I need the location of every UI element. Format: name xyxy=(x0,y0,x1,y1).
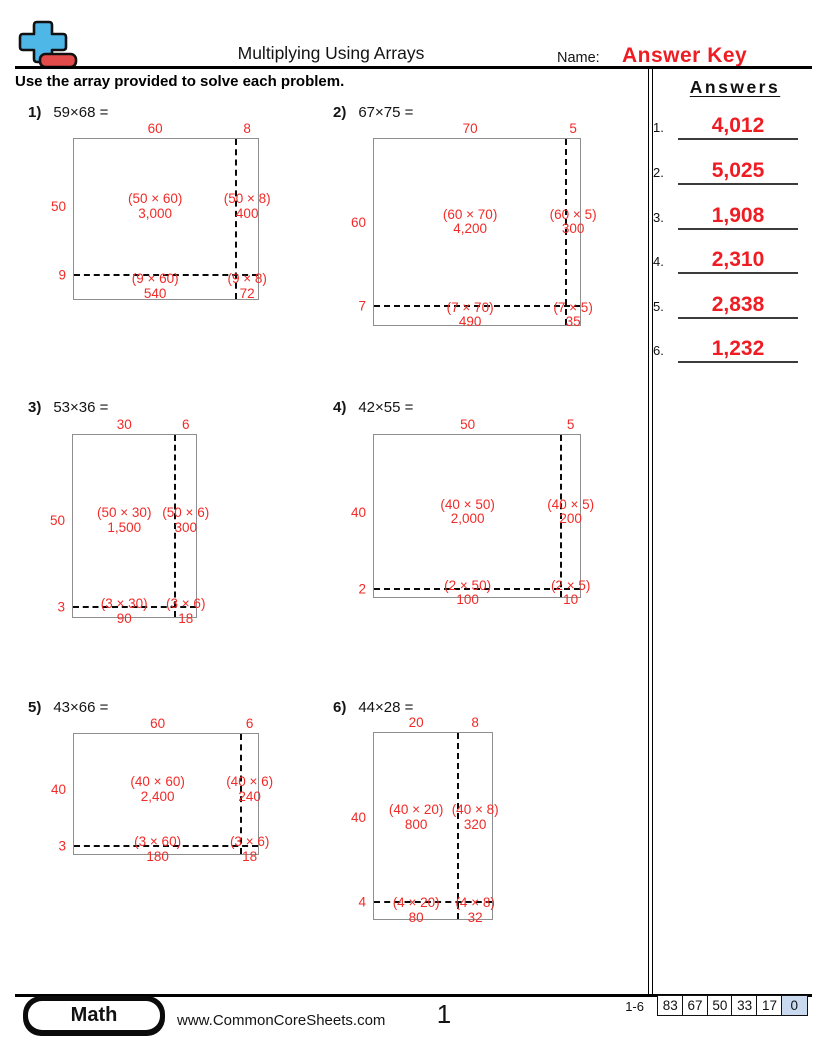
cell-product: 800 xyxy=(405,818,428,833)
cell-formula: (40 × 60) xyxy=(130,775,184,790)
array-cell: (7 × 70) 490 xyxy=(374,306,566,325)
cell-formula: (7 × 70) xyxy=(447,301,494,316)
array-cell: (60 × 70) 4,200 xyxy=(374,139,566,306)
top-label-tens: 60 xyxy=(74,121,236,136)
cell-formula: (40 × 50) xyxy=(440,498,494,513)
cell-product: 240 xyxy=(238,790,261,805)
page-title: Multiplying Using Arrays xyxy=(98,43,564,64)
array-cell: (50 × 30) 1,500 xyxy=(73,435,175,607)
array-cell: (50 × 8) 400 xyxy=(236,139,258,275)
array-cell: (9 × 8) 72 xyxy=(236,275,258,299)
problem-header: 3) 53×36 = xyxy=(28,399,108,416)
problem-number: 2) xyxy=(333,104,346,121)
score-box: 67 xyxy=(682,995,709,1016)
problem-expression: 59×68 = xyxy=(53,104,108,121)
top-label-tens: 30 xyxy=(73,417,175,432)
array-cell: (2 × 5) 10 xyxy=(561,589,580,597)
cell-product: 90 xyxy=(117,612,132,627)
cell-product: 18 xyxy=(242,850,257,865)
array-cell: (60 × 5) 300 xyxy=(566,139,580,306)
array-cell: (9 × 60) 540 xyxy=(74,275,236,299)
top-label-tens: 50 xyxy=(374,417,561,432)
top-label-ones: 6 xyxy=(175,417,196,432)
top-label-tens: 70 xyxy=(374,121,566,136)
cell-product: 1,500 xyxy=(107,521,141,536)
cell-formula: (40 × 20) xyxy=(389,803,443,818)
cell-formula: (50 × 30) xyxy=(97,506,151,521)
cell-product: 180 xyxy=(146,850,169,865)
answer-number: 4. xyxy=(653,254,664,269)
cell-formula: (60 × 5) xyxy=(550,208,597,223)
cell-formula: (40 × 8) xyxy=(452,803,499,818)
problem-number: 6) xyxy=(333,699,346,716)
answer-value: 5,025 xyxy=(678,158,798,185)
side-label-tens: 50 xyxy=(50,435,65,607)
cell-formula: (40 × 5) xyxy=(547,498,594,513)
score-box: 33 xyxy=(731,995,758,1016)
problem-expression: 42×55 = xyxy=(358,399,413,416)
problem-expression: 53×36 = xyxy=(53,399,108,416)
subject-badge: Math xyxy=(23,996,165,1036)
array-cell: (4 × 20) 80 xyxy=(374,902,458,919)
array-diagram: 60 8 50 9 (50 × 60) 3,000 (50 × 8) 400 (… xyxy=(73,138,259,300)
problem-number: 4) xyxy=(333,399,346,416)
answer-row: 1. 4,012 xyxy=(652,113,798,138)
website-url: www.CommonCoreSheets.com xyxy=(177,1012,385,1029)
cell-formula: (4 × 20) xyxy=(393,896,440,911)
cell-product: 490 xyxy=(459,315,482,330)
array-cell: (2 × 50) 100 xyxy=(374,589,561,597)
cell-product: 320 xyxy=(464,818,487,833)
problem-header: 2) 67×75 = xyxy=(333,104,413,121)
array-cell: (40 × 60) 2,400 xyxy=(74,734,241,846)
array-cell: (40 × 6) 240 xyxy=(241,734,258,846)
array-cell: (40 × 50) 2,000 xyxy=(374,435,561,589)
answer-value: 2,310 xyxy=(678,247,798,274)
cell-formula: (4 × 8) xyxy=(455,896,494,911)
array-cell: (4 × 8) 32 xyxy=(458,902,492,919)
name-value-answer-key: Answer Key xyxy=(622,44,747,68)
commoncoresheets-logo-icon xyxy=(18,20,80,70)
array-diagram: 30 6 50 3 (50 × 30) 1,500 (50 × 6) 300 (… xyxy=(72,434,197,618)
top-label-ones: 5 xyxy=(561,417,580,432)
array-diagram: 70 5 60 7 (60 × 70) 4,200 (60 × 5) 300 (… xyxy=(373,138,581,326)
cell-product: 2,400 xyxy=(141,790,175,805)
cell-formula: (3 × 6) xyxy=(230,835,269,850)
cell-formula: (60 × 70) xyxy=(443,208,497,223)
answer-row: 4. 2,310 xyxy=(652,247,798,272)
top-label-ones: 5 xyxy=(566,121,580,136)
problem-number: 5) xyxy=(28,699,41,716)
array-cell: (3 × 30) 90 xyxy=(73,607,175,617)
side-label-ones: 7 xyxy=(358,298,366,313)
answer-value: 1,232 xyxy=(678,336,798,363)
side-label-ones: 3 xyxy=(58,838,66,853)
cell-product: 4,200 xyxy=(453,222,487,237)
cell-product: 3,000 xyxy=(138,207,172,222)
answer-number: 3. xyxy=(653,210,664,225)
score-box-zero: 0 xyxy=(781,995,808,1016)
problem-header: 4) 42×55 = xyxy=(333,399,413,416)
problem-number: 1) xyxy=(28,104,41,121)
top-label-tens: 20 xyxy=(374,715,458,730)
name-label: Name: xyxy=(557,50,600,66)
answer-number: 2. xyxy=(653,165,664,180)
cell-product: 10 xyxy=(563,593,578,608)
cell-formula: (40 × 6) xyxy=(226,775,273,790)
subject-badge-label: Math xyxy=(28,1001,160,1030)
problem-number: 3) xyxy=(28,399,41,416)
problem-expression: 44×28 = xyxy=(358,699,413,716)
cell-product: 100 xyxy=(456,593,479,608)
answer-row: 3. 1,908 xyxy=(652,203,798,228)
problem-header: 1) 59×68 = xyxy=(28,104,108,121)
cell-formula: (2 × 50) xyxy=(444,579,491,594)
cell-formula: (9 × 8) xyxy=(227,272,266,287)
problem-header: 6) 44×28 = xyxy=(333,699,413,716)
problem-expression: 67×75 = xyxy=(358,104,413,121)
side-label-ones: 9 xyxy=(58,267,66,282)
answer-row: 5. 2,838 xyxy=(652,292,798,317)
side-label-tens: 40 xyxy=(51,734,66,846)
array-diagram: 50 5 40 2 (40 × 50) 2,000 (40 × 5) 200 (… xyxy=(373,434,581,598)
side-label-tens: 50 xyxy=(51,139,66,275)
top-label-tens: 60 xyxy=(74,716,241,731)
answer-value: 1,908 xyxy=(678,203,798,230)
score-range-label: 1-6 xyxy=(600,999,644,1014)
side-label-ones: 4 xyxy=(358,895,366,910)
answers-title: Answers xyxy=(658,77,812,98)
array-cell: (40 × 8) 320 xyxy=(458,733,492,902)
cell-product: 300 xyxy=(174,521,197,536)
cell-product: 35 xyxy=(566,315,581,330)
array-cell: (40 × 5) 200 xyxy=(561,435,580,589)
cell-formula: (7 × 5) xyxy=(553,301,592,316)
answer-row: 6. 1,232 xyxy=(652,336,798,361)
side-label-tens: 60 xyxy=(351,139,366,306)
cell-product: 200 xyxy=(559,512,582,527)
array-cell: (3 × 6) 18 xyxy=(241,846,258,854)
problem-expression: 43×66 = xyxy=(53,699,108,716)
side-label-tens: 40 xyxy=(351,733,366,902)
side-label-ones: 3 xyxy=(57,599,65,614)
cell-product: 18 xyxy=(178,612,193,627)
cell-formula: (9 × 60) xyxy=(132,272,179,287)
cell-formula: (50 × 6) xyxy=(162,506,209,521)
array-cell: (50 × 60) 3,000 xyxy=(74,139,236,275)
header-divider-line xyxy=(15,66,812,69)
answer-number: 5. xyxy=(653,299,664,314)
array-cell: (50 × 6) 300 xyxy=(175,435,196,607)
side-label-ones: 2 xyxy=(358,582,366,597)
cell-formula: (2 × 5) xyxy=(551,579,590,594)
cell-product: 80 xyxy=(409,911,424,926)
cell-product: 32 xyxy=(468,911,483,926)
answer-value: 4,012 xyxy=(678,113,798,140)
array-diagram: 20 8 40 4 (40 × 20) 800 (40 × 8) 320 (4 … xyxy=(373,732,493,920)
answer-number: 1. xyxy=(653,120,664,135)
answer-number: 6. xyxy=(653,343,664,358)
answer-row: 2. 5,025 xyxy=(652,158,798,183)
page-number: 1 xyxy=(414,999,474,1030)
answer-value: 2,838 xyxy=(678,292,798,319)
top-label-ones: 8 xyxy=(458,715,492,730)
score-box: 50 xyxy=(707,995,734,1016)
instruction-text: Use the array provided to solve each pro… xyxy=(15,73,344,90)
top-label-ones: 6 xyxy=(241,716,258,731)
cell-product: 400 xyxy=(236,207,259,222)
cell-formula: (50 × 60) xyxy=(128,192,182,207)
cell-product: 300 xyxy=(562,222,585,237)
array-diagram: 60 6 40 3 (40 × 60) 2,400 (40 × 6) 240 (… xyxy=(73,733,259,855)
problem-header: 5) 43×66 = xyxy=(28,699,108,716)
array-cell: (3 × 6) 18 xyxy=(175,607,196,617)
score-box: 17 xyxy=(756,995,783,1016)
worksheet-page: Multiplying Using Arrays Name: Answer Ke… xyxy=(0,0,816,1056)
cell-formula: (3 × 30) xyxy=(101,597,148,612)
cell-product: 72 xyxy=(240,287,255,302)
array-cell: (7 × 5) 35 xyxy=(566,306,580,325)
cell-formula: (3 × 6) xyxy=(166,597,205,612)
array-cell: (3 × 60) 180 xyxy=(74,846,241,854)
cell-formula: (50 × 8) xyxy=(224,192,271,207)
score-table: 83 67 50 33 17 0 xyxy=(657,995,808,1016)
cell-product: 2,000 xyxy=(451,512,485,527)
score-box: 83 xyxy=(657,995,684,1016)
top-label-ones: 8 xyxy=(236,121,258,136)
side-label-tens: 40 xyxy=(351,435,366,589)
array-cell: (40 × 20) 800 xyxy=(374,733,458,902)
cell-formula: (3 × 60) xyxy=(134,835,181,850)
cell-product: 540 xyxy=(144,287,167,302)
